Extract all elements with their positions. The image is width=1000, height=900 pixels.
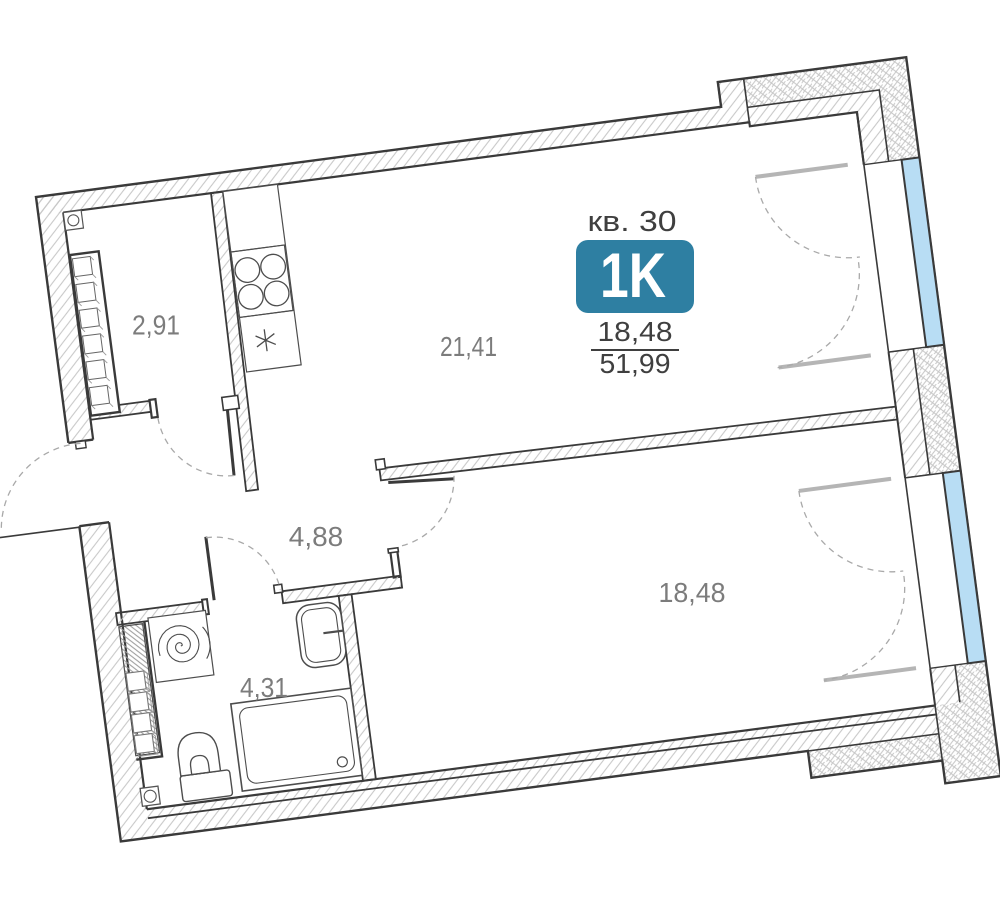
- svg-text:18,48: 18,48: [598, 316, 673, 347]
- svg-text:51,99: 51,99: [600, 348, 671, 379]
- svg-text:2,91: 2,91: [132, 310, 180, 341]
- svg-text:4,88: 4,88: [289, 521, 344, 552]
- svg-text:4,31: 4,31: [240, 672, 288, 703]
- svg-text:21,41: 21,41: [440, 331, 497, 362]
- svg-text:18,48: 18,48: [659, 577, 726, 608]
- svg-text:кв. 30: кв. 30: [588, 206, 677, 238]
- svg-text:1K: 1K: [600, 241, 666, 311]
